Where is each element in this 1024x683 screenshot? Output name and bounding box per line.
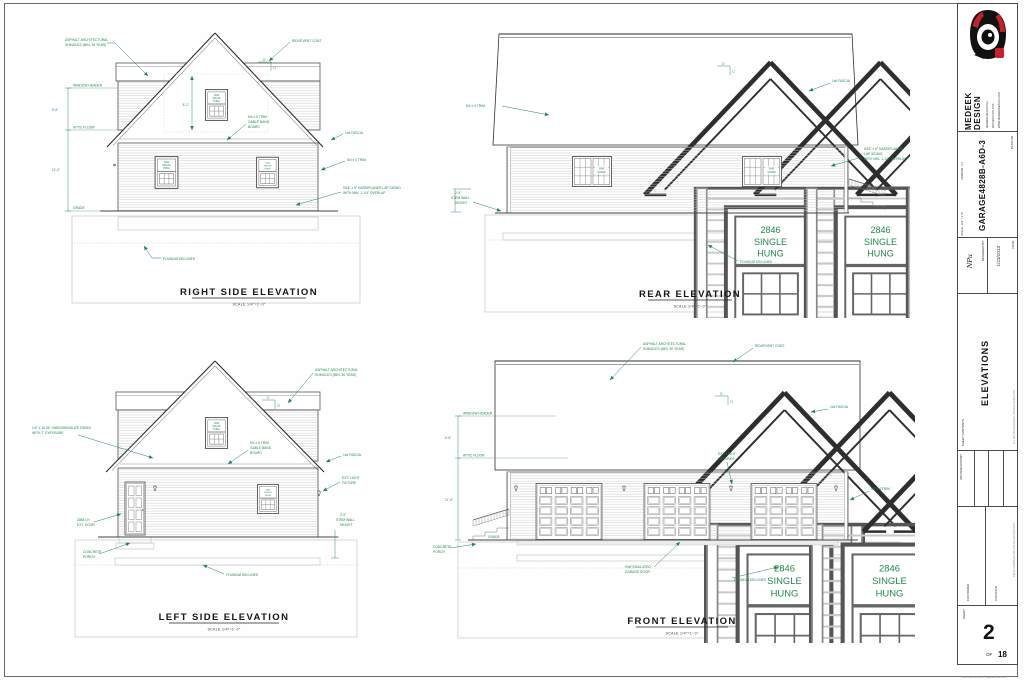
annotation-porch: CONCRETE PORCH (83, 543, 130, 559)
annotation-text: 1x6 FASCIA (832, 79, 851, 83)
entry-door (125, 482, 145, 535)
annotation-text: WITH 7" EXPOSURE (32, 431, 64, 435)
sheet-label: SHEET (962, 609, 966, 619)
annotation-text: LAP SIDING (864, 152, 883, 156)
right-side-elevation-drawing: 8'-1" WINDOW HEADER 6'-6" ATTIC FLOOR 11… (40, 18, 432, 310)
hose-bib (114, 164, 116, 166)
annotation-text: BOARD (248, 125, 260, 129)
sheet-total: 18 (998, 650, 1007, 659)
annotation-text: SHINGLES (MIN. 30 YEAR) (65, 43, 106, 47)
annotation-text: STEM WALL (336, 518, 355, 522)
annotation-text: SHINGLES (MIN. 30 YEAR) (315, 373, 356, 377)
annotation-text: FOUNDATION LINES (734, 578, 767, 582)
plan-version-label: VERSION : 2.1 (961, 136, 964, 180)
left-dimension-chain: WINDOW HEADER 6'-6" ATTIC FLOOR 11'-4" G… (52, 84, 118, 212)
annotation-text: STEM WALL (451, 196, 470, 200)
gable-window (205, 418, 227, 449)
left-side-elevation-drawing: ASPHALT ARCHITECTURAL SHINGLES (MIN. 30 … (28, 358, 393, 650)
annotation-text: WITH MIN. 1-1/4" OVERLAP (343, 191, 386, 195)
dim-11-4-label: 11'-4" (52, 168, 60, 172)
dim-6-6-label: 6'-6" (52, 108, 58, 112)
front-elevation-drawing: WINDOW HEADER 6'-6" ATTIC FLOOR 11'-4" G… (428, 328, 915, 643)
annotation-text: FOUNDATION LINES (163, 257, 196, 261)
annotation-text: ASPHALT ARCHITECTURAL (315, 368, 358, 372)
annotation-text: CONCRETE (83, 550, 102, 554)
sheet-contents-value: ELEVATIONS (980, 318, 990, 428)
annotation-foundation-lines: FOUNDATION LINES (203, 565, 259, 577)
view-title: LEFT SIDE ELEVATION (159, 612, 290, 623)
annotation-text: ASPHALT ARCHITECTURAL (65, 38, 108, 42)
plan-number: GARAGE4828B-A6D-3 (978, 135, 987, 235)
attic-floor-label: ATTIC FLOOR (463, 454, 485, 458)
medeek-logo (968, 6, 1008, 62)
view-scale: SCALE 1/4"=1'-0" (207, 628, 241, 632)
annotation-text: 5/16" x 8" HARDIPLANK® (864, 147, 903, 151)
annotation-text: RIDGEVENT CONT. (755, 344, 785, 348)
annotation-text: PORCH (433, 550, 446, 554)
annotation-foundation-lines: FOUNDATION LINES (144, 246, 196, 261)
dim-6-6-label: 6'-6" (445, 436, 451, 440)
view-scale: SCALE 1/4"=1'-0" (673, 305, 707, 309)
view-scale: SCALE 1/4"=1'-0" (665, 632, 699, 636)
grade-label: GRADE (488, 535, 501, 539)
annotation-stem-wall: 2'-6" STEM WALL HEIGHT (331, 513, 355, 558)
window-header-label: WINDOW HEADER (463, 412, 493, 416)
revision-row (974, 451, 988, 506)
annotation-fascia: 1x6 FASCIA (331, 131, 364, 140)
grade-label: GRADE (73, 206, 86, 210)
annotation-text: 2'-6" (455, 191, 461, 195)
view-title: RIGHT SIDE ELEVATION (180, 287, 318, 298)
revision-row (988, 451, 1002, 506)
revision-history-label: REVISION HISTORY (960, 454, 963, 479)
plan-scale-label: SCALE : 1/4" = 1'-0" (961, 184, 964, 236)
annotation-text: 1/4" x 15.25" HARDISHINGLE® SIDING (32, 426, 91, 430)
annotation-text: 5/4 x 5 TRIM (248, 115, 267, 119)
attic-floor-label: ATTIC FLOOR (73, 126, 95, 130)
annotation-text: GABLE BAND (250, 446, 272, 450)
annotation-text: GABLE BAND (248, 120, 270, 124)
brand-name: MEDEEK DESIGN (964, 66, 982, 130)
sheet-of-label: OF (986, 652, 992, 657)
brand-address-line: MEDEEK DESIGN INC. (986, 68, 990, 128)
brand-address-line: WWW.MEDEEKDESIGN.COM (998, 68, 1002, 128)
annotation-trim: 5/4 x 4 TRIM (321, 158, 366, 170)
rear-elevation-drawing: 5/4 x 4 TRIM 1x6 FASCIA 5/16" x 8" HARDI… (445, 18, 910, 318)
right-window (258, 484, 279, 513)
annotation-text: 1x6 FASCIA (345, 131, 364, 135)
annotation-stem-wall: 2'-6" STEM WALL HEIGHT (451, 189, 501, 212)
annotation-text: 5/4 x 4 TRIM (466, 104, 485, 108)
annotation-text: HEIGHT (455, 201, 467, 205)
annotation-text: 1x6 FASCIA (830, 405, 849, 409)
annotation-text: 5/4 x 4 TRIM (347, 158, 366, 162)
annotation-text: CONCRETE (433, 545, 452, 549)
annotation-door: 3068 LH EXT. DOOR (77, 514, 121, 527)
roof-plane (493, 34, 858, 145)
annotation-text: FOUNDATION LINES (740, 260, 773, 264)
main-wall-siding (118, 143, 318, 211)
left-window (155, 157, 178, 189)
customer-label: CUSTOMER (966, 584, 970, 601)
dim-8-1-label: 8'-1" (183, 103, 189, 107)
annotation-ridgevent: RIDGEVENT CONT. (733, 344, 785, 362)
annotation-text: HEIGHT (340, 523, 352, 527)
date-value: 1/23/2013 (996, 246, 1001, 266)
annotation-text: WITH MIN. 1-1/4" OVERLAP (864, 157, 907, 161)
annotation-text: ASPHALT ARCHITECTURAL (643, 342, 686, 346)
right-window (257, 157, 279, 187)
annotation-text: 3068 LH (77, 518, 90, 522)
annotation-text: FIXTURES (718, 457, 735, 461)
brand-address-line: WASHINGTON, USA (992, 68, 996, 128)
window-header-label: WINDOW HEADER (73, 84, 103, 88)
dim-11-4-label: 11'-4" (445, 498, 453, 502)
title-block: MEDEEK DESIGN MEDEEK DESIGN INC. WASHING… (957, 4, 1018, 677)
title-block-revision-box: REVISION HISTORY (957, 450, 1018, 507)
annotation-text: FOUNDATION LINES (226, 573, 259, 577)
location-label: LOCATION (994, 586, 998, 601)
garage-door-2 (644, 483, 710, 539)
view-title: REAR ELEVATION (639, 289, 741, 300)
sheet-contents-label: SHEET CONTENTS (961, 419, 965, 446)
annotation-text: FIXTURE (342, 481, 357, 485)
slider-window-right (743, 157, 782, 187)
main-wall-siding (118, 468, 318, 537)
garage-door-3 (751, 483, 817, 539)
garage-door-1 (536, 483, 602, 539)
annotation-text: SHINGLES (MIN. 30 YEAR) (643, 347, 684, 351)
annotation-garage-door: 9'x8' INSULATED GARAGE DOOR (625, 542, 680, 574)
main-wall-siding (507, 147, 848, 213)
view-title: FRONT ELEVATION (627, 616, 736, 627)
title-block-customer-box: CUSTOMER LOCATION THESE DRAWINGS MAY NOT… (957, 506, 1018, 606)
annotation-porch: CONCRETE PORCH (433, 544, 476, 554)
annotation-ridgevent: RIDGEVENT CONT. (269, 39, 322, 61)
sheet-number: 2 (983, 622, 995, 643)
annotation-text: GARAGE DOOR (625, 570, 651, 574)
annotation-text: BOARD (250, 451, 262, 455)
annotation-text: 2'-6" (340, 513, 346, 517)
view-scale: SCALE 1/4"=1'-0" (232, 303, 266, 307)
designed-by-value: NPu (966, 254, 974, 268)
annotation-text: PORCH (83, 555, 96, 559)
slider-window-left (573, 157, 612, 187)
revision-row (1003, 451, 1017, 506)
annotation-text: 5/4 x 5 TRIM (250, 441, 269, 445)
annotation-text: 5/16" x 8" HARDIPLANK® LAP SIDING (343, 186, 401, 190)
annotation-text: EXT. LIGHT (342, 476, 360, 480)
title-block-brand-box: MEDEEK DESIGN MEDEEK DESIGN INC. WASHING… (957, 3, 1018, 132)
annotation-text: EXT. LIGHT (718, 452, 736, 456)
title-block-sheet-box: SHEET 2 OF 18 (957, 605, 1018, 665)
fine-print: ALL RIGHTS RESERVED - MEDEEK DESIGN INC. (1013, 389, 1016, 444)
gable-window (205, 90, 227, 121)
fine-print: THESE DRAWINGS MAY NOT BE REPRODUCED (1013, 523, 1016, 578)
annotation-text: 5/4 x 4 TRIM (871, 487, 890, 491)
annotation-text: 9'x8' INSULATED (625, 565, 651, 569)
annotation-text: EXT. DOOR (77, 523, 95, 527)
title-block-plan-box: PLAN NO. GARAGE4828B-A6D-3 SCALE : 1/4" … (957, 131, 1018, 238)
fine-print-bottom: PRINTED 1/23/2013 - MEDEEK DESIGN (962, 676, 1006, 679)
annotation-fascia: 1x6 FASCIA (326, 453, 362, 462)
date-label: DATE: (1011, 240, 1015, 249)
designed-by-label: DESIGNED BY: (981, 240, 985, 261)
annotation-text: RIDGEVENT CONT. (292, 39, 322, 43)
annotation-ext-light: EXT. LIGHT FIXTURE (323, 476, 360, 491)
drawing-sheet: 2846 SINGLE HUNG 6046 SLIDER (0, 0, 1024, 683)
plan-no-label: PLAN NO. (1010, 135, 1014, 149)
title-block-contents-box: ELEVATIONS SHEET CONTENTS ALL RIGHTS RES… (957, 293, 1018, 451)
title-block-designer-box: DESIGNED BY: NPu DATE: 1/23/2013 (957, 237, 1018, 294)
annotation-text: 1x6 FASCIA (343, 453, 362, 457)
